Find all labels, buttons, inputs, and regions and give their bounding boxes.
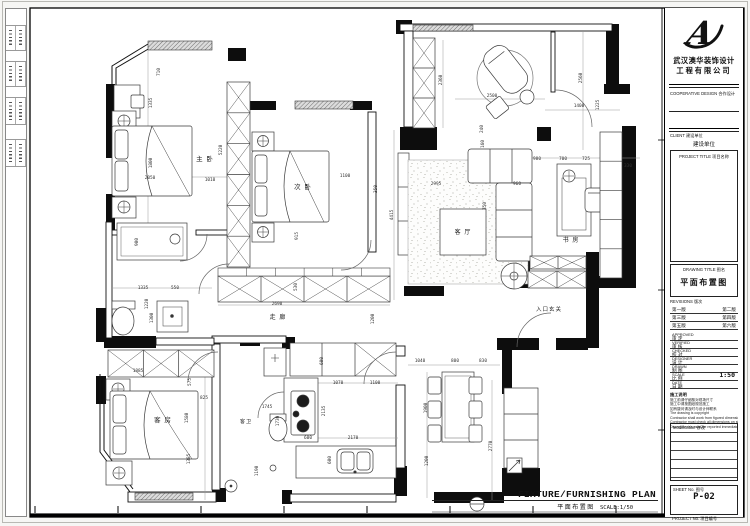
client-label: CLIENT 建设单位 — [670, 134, 703, 139]
dim-label: 2560 — [578, 72, 584, 83]
binding-cell — [16, 62, 26, 86]
sign-row-zh: 日 期 — [672, 385, 736, 390]
project-title-label: PROJECT TITLE 项目名称 — [671, 155, 737, 160]
cooperative-design-label: COOPERATIVE DESIGN 合作设计 — [670, 92, 735, 97]
dim-label: 2135 — [321, 405, 327, 416]
binding-cell — [6, 26, 16, 50]
room-label: 主 卧 — [196, 154, 214, 163]
revision-label: 第四版 — [722, 315, 736, 321]
dim-label: 1885 — [133, 368, 144, 374]
binding-cell-group — [6, 139, 26, 167]
modification-box: Modification 修改 — [670, 423, 738, 481]
shower — [117, 223, 187, 260]
dim-label: 330 — [624, 163, 632, 169]
dim-label: 1100 — [370, 380, 381, 386]
dim-label: 2360 — [438, 74, 444, 85]
revisions-label: REVISIONS 版次 — [670, 300, 702, 305]
room-label: 入口玄关 — [536, 305, 562, 313]
dim-label: 800 — [451, 358, 459, 364]
revision-row: 第三版第四版 — [670, 314, 738, 322]
revision-label: 第二版 — [722, 307, 736, 313]
dim-label: 2690 — [272, 301, 283, 307]
dim-label: 710 — [156, 68, 162, 76]
dim-label: 1745 — [262, 404, 273, 410]
footer-title-en: FIXTURE/FURNISHING PLAN — [518, 489, 656, 500]
dim-label: 915 — [294, 232, 300, 240]
dim-label: 160 — [480, 140, 486, 148]
footer-scale: SCALE:1/50 — [600, 505, 633, 511]
dim-label: 1900 — [423, 402, 429, 413]
binding-cell — [6, 140, 16, 166]
revision-label: 第六版 — [722, 323, 736, 329]
floor-plan-canvas: 主 卧次 卧客 厅书 房走 廊入口玄关客 房客卫 710133518002050… — [0, 0, 750, 526]
dim-label: 1580 — [184, 412, 190, 423]
second-nightstand-1 — [252, 132, 274, 151]
binding-cell-group — [6, 97, 26, 125]
dim-label: 725 — [582, 156, 590, 162]
master-nightstand-2 — [112, 197, 136, 218]
dim-label: 5220 — [218, 144, 224, 155]
title-block: A 武汉澳华装饰设计 工程有限公司 COOPERATIVE DESIGN 合作设… — [664, 8, 744, 517]
dim-label: 530 — [293, 283, 299, 291]
floor-drain-2 — [270, 465, 276, 471]
company-logo: A — [665, 14, 743, 59]
dim-label: 830 — [479, 358, 487, 364]
dining-sideboard — [504, 388, 538, 473]
sign-row-value: 1:50 — [719, 371, 735, 379]
dim-label: 2170 — [348, 435, 359, 441]
dim-label: 2500 — [487, 93, 498, 99]
dim-label: 350 — [482, 202, 488, 210]
guest-nightstand-2 — [106, 461, 132, 485]
dim-label: 1300 — [149, 312, 155, 323]
modification-label: Modification 修改 — [671, 424, 737, 433]
bath-vanity — [157, 301, 188, 332]
toilet — [112, 301, 135, 335]
guest-bed — [110, 391, 198, 459]
dim-label: 1220 — [144, 298, 150, 309]
footer-title-zh: 平面布置图 — [557, 503, 595, 511]
revision-row: 第五版第六版 — [670, 322, 738, 330]
study-shelf — [600, 132, 622, 278]
dim-label: 2995 — [431, 181, 442, 187]
sheet-no-value: P-02 — [671, 492, 737, 502]
dim-label: 2770 — [488, 440, 494, 451]
dim-label: 550 — [171, 285, 179, 291]
dim-label: 600 — [327, 456, 333, 464]
binding-strip — [5, 8, 27, 517]
binding-cell-group — [6, 25, 26, 51]
binding-cell-group — [6, 61, 26, 87]
dim-label: 2050 — [145, 175, 156, 181]
room-label: 走 廊 — [270, 313, 287, 321]
dim-label: 900 — [134, 238, 140, 246]
dim-label: 600 — [319, 357, 325, 365]
drawing-sheet: 主 卧次 卧客 厅书 房走 廊入口玄关客 房客卫 710133518002050… — [0, 0, 750, 526]
floor-lamp — [501, 263, 527, 289]
dim-label: 1100 — [340, 173, 351, 179]
revision-row: 第一版第二版 — [670, 306, 738, 314]
dim-label: 240 — [479, 125, 485, 133]
guest-bath-vanity — [264, 348, 286, 376]
dim-label: 1385 — [186, 453, 192, 464]
binding-cell — [16, 26, 26, 50]
room-label: 客 房 — [154, 415, 172, 424]
drawing-title-value: 平面布置图 — [671, 277, 737, 288]
dim-label: 600 — [304, 435, 312, 441]
dim-label: 1400 — [574, 103, 585, 109]
room-label: 次 卧 — [294, 182, 312, 191]
kitchen-counter-top — [290, 343, 396, 376]
client-value: 建设单位 — [665, 140, 743, 148]
dim-label: 1335 — [138, 285, 149, 291]
tv-cabinet — [398, 153, 409, 255]
dim-label: 4415 — [389, 209, 395, 220]
kitchen-sink — [296, 446, 396, 478]
dim-label: 700 — [559, 156, 567, 162]
project-title-box: PROJECT TITLE 项目名称 — [670, 150, 738, 262]
kitchen-stove — [284, 378, 318, 442]
revision-label: 第五版 — [672, 323, 686, 329]
room-label: 客 厅 — [455, 228, 472, 236]
sheet-no-box: SHEET No. 图号 P-02 — [670, 485, 738, 515]
dim-label: 1200 — [370, 313, 376, 324]
dim-label: 980 — [533, 156, 541, 162]
binding-cell — [16, 98, 26, 124]
dim-label: 1335 — [148, 97, 154, 108]
dim-label: 1190 — [254, 465, 260, 476]
second-bed — [252, 151, 329, 222]
dim-label: 575 — [187, 378, 193, 386]
sign-rows: APPROVED审 定VERIFIED审 核CHECKED校 对DESIGNER… — [670, 333, 738, 389]
dim-label: 1225 — [595, 99, 601, 110]
revision-label: 第一版 — [672, 307, 686, 313]
dim-label: 1800 — [148, 157, 154, 168]
company-name-line2: 工程有限公司 — [665, 66, 743, 76]
sign-row: DATE日 期 — [670, 381, 738, 389]
binding-cell — [6, 62, 16, 86]
company-name-line1: 武汉澳华装饰设计 — [665, 56, 743, 66]
dim-label: 350 — [373, 185, 379, 193]
dim-label: 1010 — [205, 177, 216, 183]
dim-label: 825 — [200, 395, 208, 401]
dim-label: 1040 — [415, 358, 426, 364]
room-label: 书 房 — [563, 236, 580, 244]
project-no-label: PROJECT No. 项目编号 — [672, 517, 717, 522]
section-marker — [470, 497, 484, 511]
drawing-title-box: DRAWING TITLE 图名 平面布置图 — [670, 264, 738, 297]
dim-label: 1200 — [424, 455, 430, 466]
binding-cell — [6, 98, 16, 124]
dim-label: 1070 — [333, 380, 344, 386]
room-label: 客卫 — [240, 418, 252, 425]
dim-label: 1730 — [275, 415, 281, 426]
revision-label: 第三版 — [672, 315, 686, 321]
second-nightstand-2 — [252, 223, 274, 242]
revision-rows: 第一版第二版第三版第四版第五版第六版 — [670, 306, 738, 330]
binding-cell — [16, 140, 26, 166]
drawing-title-label: DRAWING TITLE 图名 — [671, 268, 737, 273]
dim-label: 960 — [513, 181, 521, 187]
